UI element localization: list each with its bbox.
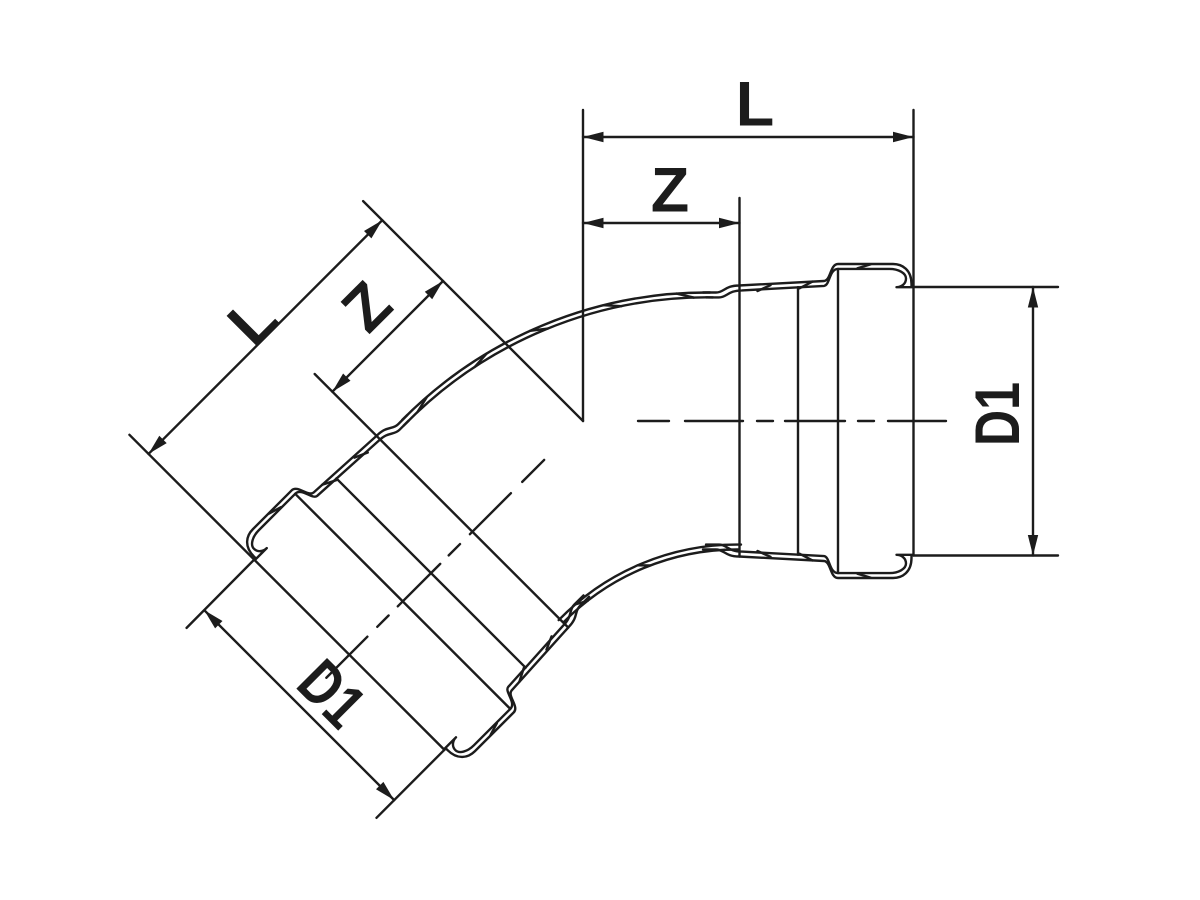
svg-text:D1: D1 — [963, 382, 1033, 446]
svg-text:Z: Z — [651, 156, 689, 226]
svg-text:L: L — [736, 70, 774, 140]
